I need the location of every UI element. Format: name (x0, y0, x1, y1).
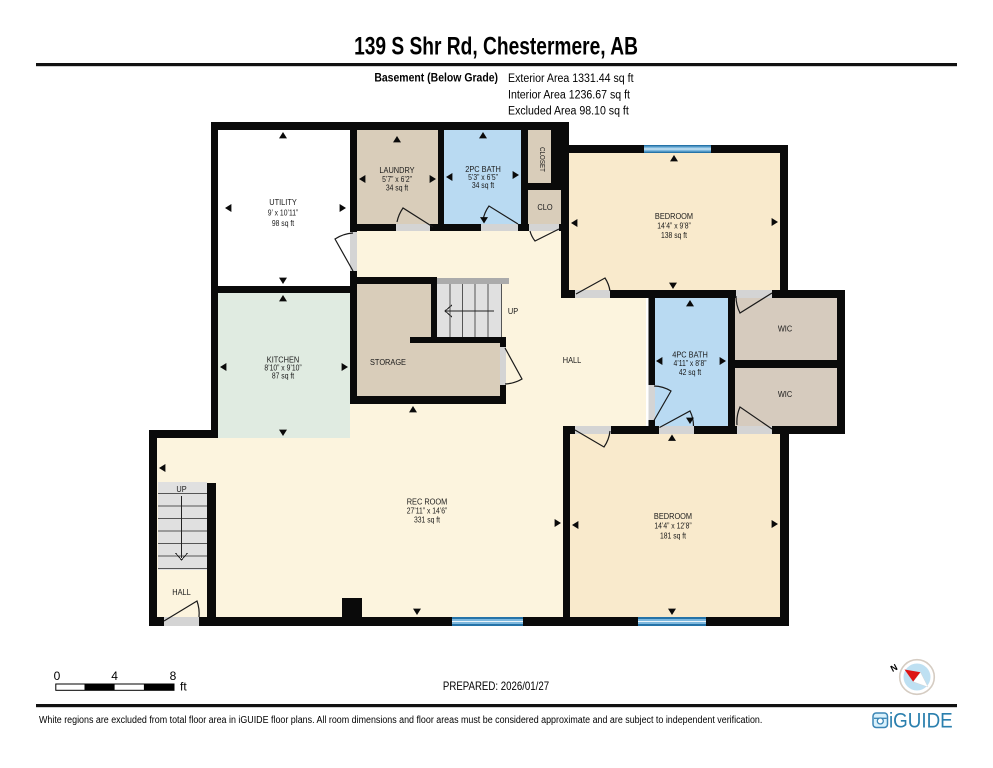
svg-text:ft: ft (180, 680, 187, 694)
svg-text:WIC: WIC (778, 324, 793, 334)
svg-text:34 sq ft: 34 sq ft (472, 180, 494, 190)
svg-text:34 sq ft: 34 sq ft (386, 183, 408, 193)
svg-text:HALL: HALL (172, 587, 191, 597)
svg-text:Excluded Area 98.10 sq ft: Excluded Area 98.10 sq ft (508, 105, 630, 118)
svg-text:138 sq ft: 138 sq ft (661, 230, 687, 240)
svg-text:139 S Shr Rd, Chestermere, AB: 139 S Shr Rd, Chestermere, AB (354, 32, 638, 60)
svg-text:42 sq ft: 42 sq ft (679, 367, 701, 377)
svg-text:87 sq ft: 87 sq ft (272, 371, 294, 381)
svg-text:0: 0 (54, 669, 61, 683)
svg-text:331 sq ft: 331 sq ft (414, 515, 440, 525)
svg-text:White regions are excluded fro: White regions are excluded from total fl… (39, 714, 762, 726)
svg-text:Interior Area 1236.67 sq ft: Interior Area 1236.67 sq ft (508, 89, 631, 102)
svg-text:UP: UP (176, 484, 186, 494)
svg-text:9’ x 10’11”: 9’ x 10’11” (268, 208, 299, 218)
svg-text:BEDROOM: BEDROOM (654, 511, 692, 521)
svg-text:14’4” x 9’8”: 14’4” x 9’8” (657, 221, 691, 231)
svg-text:98 sq ft: 98 sq ft (272, 218, 294, 228)
svg-text:Basement (Below Grade): Basement (Below Grade) (374, 72, 498, 85)
svg-text:4: 4 (111, 669, 118, 683)
svg-text:UP: UP (508, 306, 518, 316)
svg-text:iGUIDE: iGUIDE (889, 709, 953, 732)
svg-text:STORAGE: STORAGE (370, 357, 407, 367)
svg-text:8: 8 (170, 669, 177, 683)
svg-text:CLO: CLO (537, 202, 552, 212)
svg-text:CLOSET: CLOSET (538, 147, 546, 172)
svg-text:BEDROOM: BEDROOM (655, 211, 693, 221)
svg-text:181 sq ft: 181 sq ft (660, 531, 686, 541)
svg-text:HALL: HALL (563, 355, 582, 365)
svg-text:UTILITY: UTILITY (269, 197, 297, 207)
svg-text:PREPARED: 2026/01/27: PREPARED: 2026/01/27 (443, 680, 549, 693)
svg-text:Exterior Area 1331.44 sq ft: Exterior Area 1331.44 sq ft (508, 72, 634, 85)
svg-text:WIC: WIC (778, 389, 793, 399)
svg-text:14’4” x 12’8”: 14’4” x 12’8” (654, 521, 692, 531)
